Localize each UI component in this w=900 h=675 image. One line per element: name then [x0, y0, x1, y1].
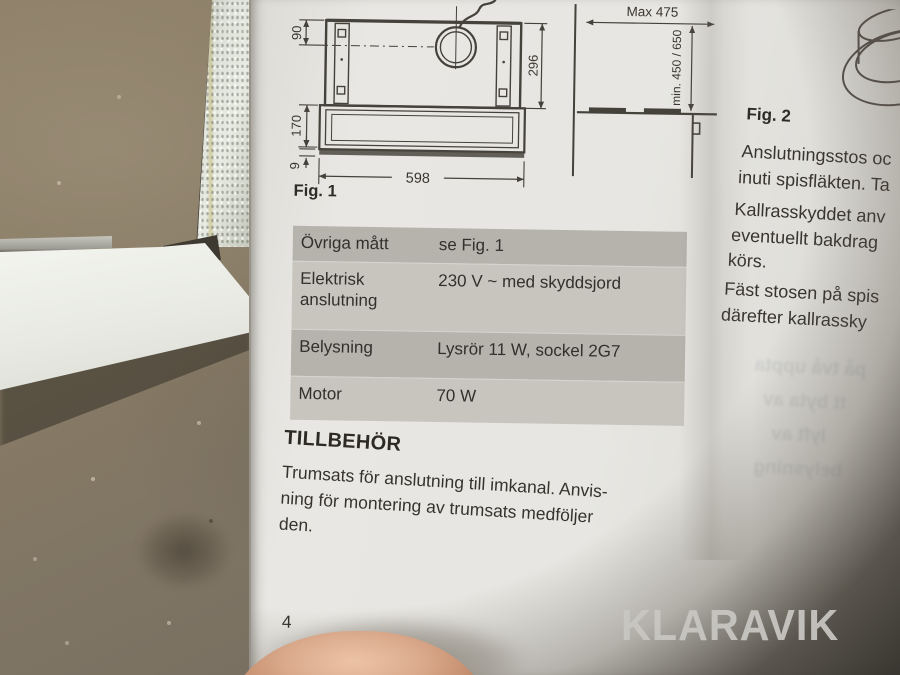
fig1-technical-drawing: 90 170 9 598 — [285, 0, 733, 212]
right-text-line: Anslutningsstos oc — [741, 141, 892, 170]
show-through-text: på två uppta tt byta av lyft av belysnin… — [743, 354, 900, 363]
table-row: Motor 70 W — [290, 376, 685, 426]
fig2-label: Fig. 2 — [746, 104, 791, 126]
right-text-line: inuti spisfläkten. Ta — [738, 167, 891, 196]
spec-value: 230 V ~ med skyddsjord — [438, 270, 679, 329]
spec-label: Elektrisk anslutning — [300, 268, 439, 325]
table-row: Belysning Lysrör 11 W, sockel 2G7 — [291, 329, 686, 382]
fig1-label: Fig. 1 — [293, 182, 336, 202]
dim-max-475: Max 475 — [626, 4, 678, 20]
spec-value: 70 W — [436, 385, 676, 420]
dim-9: 9 — [287, 162, 302, 169]
manual-page: 90 170 9 598 — [249, 0, 900, 675]
show-through-line: belysning — [753, 457, 843, 483]
dim-598: 598 — [406, 171, 430, 187]
spec-value: Lysrör 11 W, sockel 2G7 — [437, 338, 678, 376]
floor-specks — [0, 0, 2, 2]
dim-90: 90 — [289, 25, 304, 40]
right-text-line: Kallrasskyddet anv — [734, 199, 886, 228]
fig2-stos-drawing — [816, 8, 900, 121]
spec-table: Övriga mått se Fig. 1 Elektrisk anslutni… — [290, 226, 687, 426]
spec-label: Motor — [298, 383, 436, 416]
manual-page-content: 90 170 9 598 — [249, 0, 900, 675]
photo-scene: 90 170 9 598 — [0, 0, 900, 675]
show-through-line: lyft av — [771, 423, 827, 448]
floor-stain — [136, 512, 232, 590]
dim-170: 170 — [288, 115, 303, 137]
klaravik-watermark: KLARAVIK — [621, 601, 839, 651]
accessories-section: TILLBEHÖR Trumsats för anslutning till i… — [278, 427, 674, 561]
spec-value: se Fig. 1 — [439, 234, 679, 261]
spec-label: Övriga mått — [301, 232, 439, 257]
page-crease-shadow — [679, 0, 751, 560]
show-through-line: tt byta av — [762, 389, 846, 415]
dim-296: 296 — [525, 55, 540, 77]
table-row: Elektrisk anslutning 230 V ~ med skyddsj… — [291, 261, 686, 335]
show-through-line: på två uppta — [754, 354, 867, 382]
spec-label: Belysning — [299, 336, 438, 372]
right-text-line: eventuellt bakdrag — [731, 225, 879, 254]
